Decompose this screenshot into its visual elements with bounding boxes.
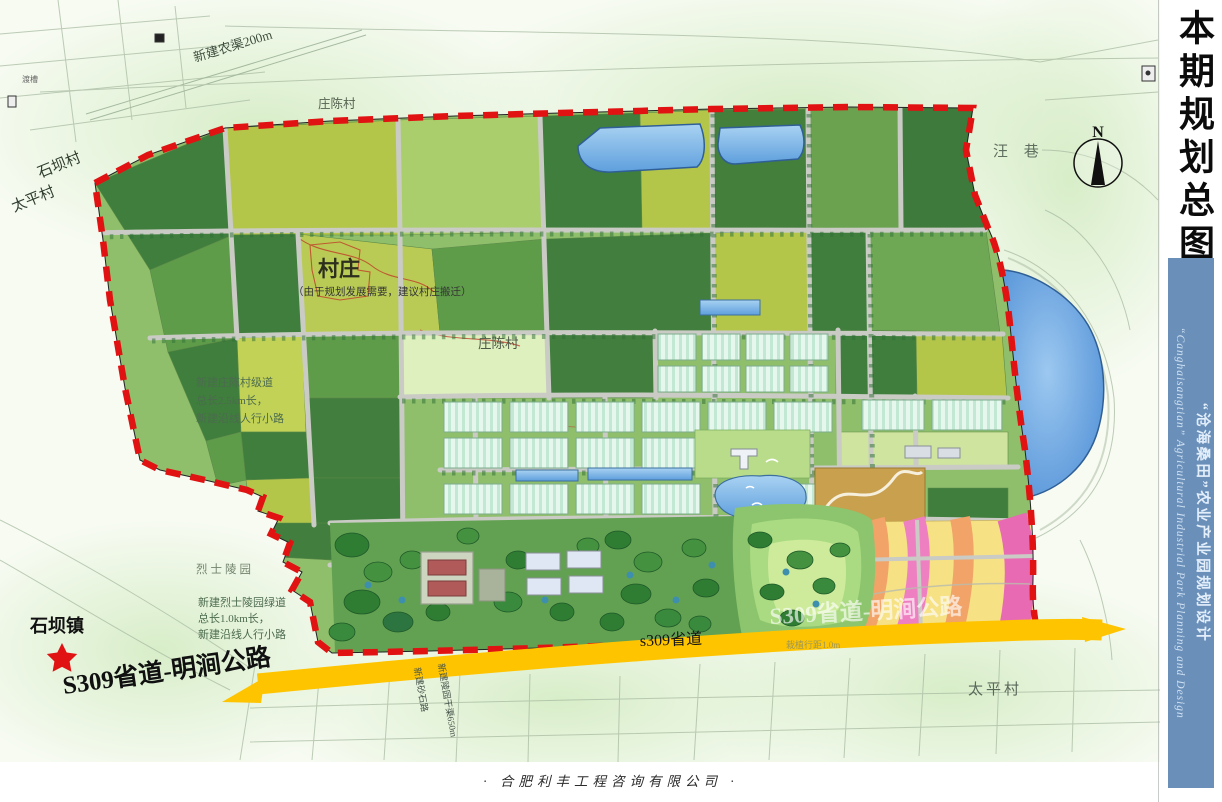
field-parcel: [546, 331, 656, 398]
field-parcel: [225, 120, 402, 235]
label-martyr-park: 烈士陵园: [196, 562, 254, 576]
company-credit: · 合肥利丰工程咨询有限公司 ·: [0, 770, 1222, 790]
note-mid-line1: 新建庄陈村级道: [196, 375, 273, 389]
sheet-title: 本期规划总图: [1164, 8, 1220, 268]
label-zhuangchencun-mid: 庄陈村: [478, 335, 519, 351]
note-mid-line2: 总长2.5km长，: [196, 393, 268, 407]
field-parcel: [808, 231, 868, 331]
subtitle-strip: “沧海桑田”农业产业园规划设计 “Canghaisangtian” Agricu…: [1168, 258, 1214, 788]
label-spacing-note: 栽植行距1.0m: [786, 639, 840, 650]
field-parcel: [306, 398, 401, 478]
field-parcel: [310, 478, 403, 525]
field-parcel: [713, 231, 808, 332]
panel-divider: [1158, 0, 1159, 802]
field-parcel: [810, 108, 901, 229]
field-parcel: [233, 234, 302, 338]
label-s309-short: s309省道: [640, 630, 703, 650]
subtitle-strip-zh: “沧海桑田”农业产业园规划设计: [1190, 258, 1214, 788]
label-wangxiang: 汪 巷: [993, 143, 1045, 160]
note-mid-line3: 新建沿线人行小路: [196, 411, 284, 425]
note-south-line3: 新建沿线人行小路: [198, 627, 286, 641]
label-duchao: 渡槽: [22, 74, 38, 84]
red-roof-compound: [421, 552, 473, 604]
field-parcel: [546, 233, 713, 333]
field-parcel: [432, 239, 549, 333]
field-parcel: [868, 230, 1000, 333]
planning-sheet: N 新建农渠200m 渡槽 石坝村 太平村 庄陈村 庄陈村 汪 巷 村庄 （由于…: [0, 0, 1222, 802]
note-south-line2: 总长1.0km长，: [198, 611, 270, 625]
gray-yard: [479, 569, 505, 601]
label-taipingcun-south: 太平村: [968, 681, 1022, 698]
label-village-note: （由于规划发展需要，建议村庄搬迁）: [293, 285, 472, 298]
field-parcel: [398, 116, 543, 235]
field-parcel: [928, 488, 1008, 520]
label-shibazhen: 石坝镇: [29, 615, 84, 636]
field-parcel: [302, 333, 402, 398]
field-parcel: [400, 333, 549, 398]
subtitle-strip-en: “Canghaisangtian” Agricultural Industria…: [1170, 258, 1190, 788]
planning-map: N 新建农渠200m 渡槽 石坝村 太平村 庄陈村 庄陈村 汪 巷 村庄 （由于…: [0, 0, 1160, 762]
label-zhuangchencun-north: 庄陈村: [318, 96, 356, 111]
field-parcel: [241, 432, 310, 480]
field-parcel: [916, 331, 1007, 398]
note-south-line1: 新建烈士陵园绿道: [198, 595, 286, 609]
label-village: 村庄: [318, 257, 360, 281]
compass-n-label: N: [1092, 124, 1104, 141]
